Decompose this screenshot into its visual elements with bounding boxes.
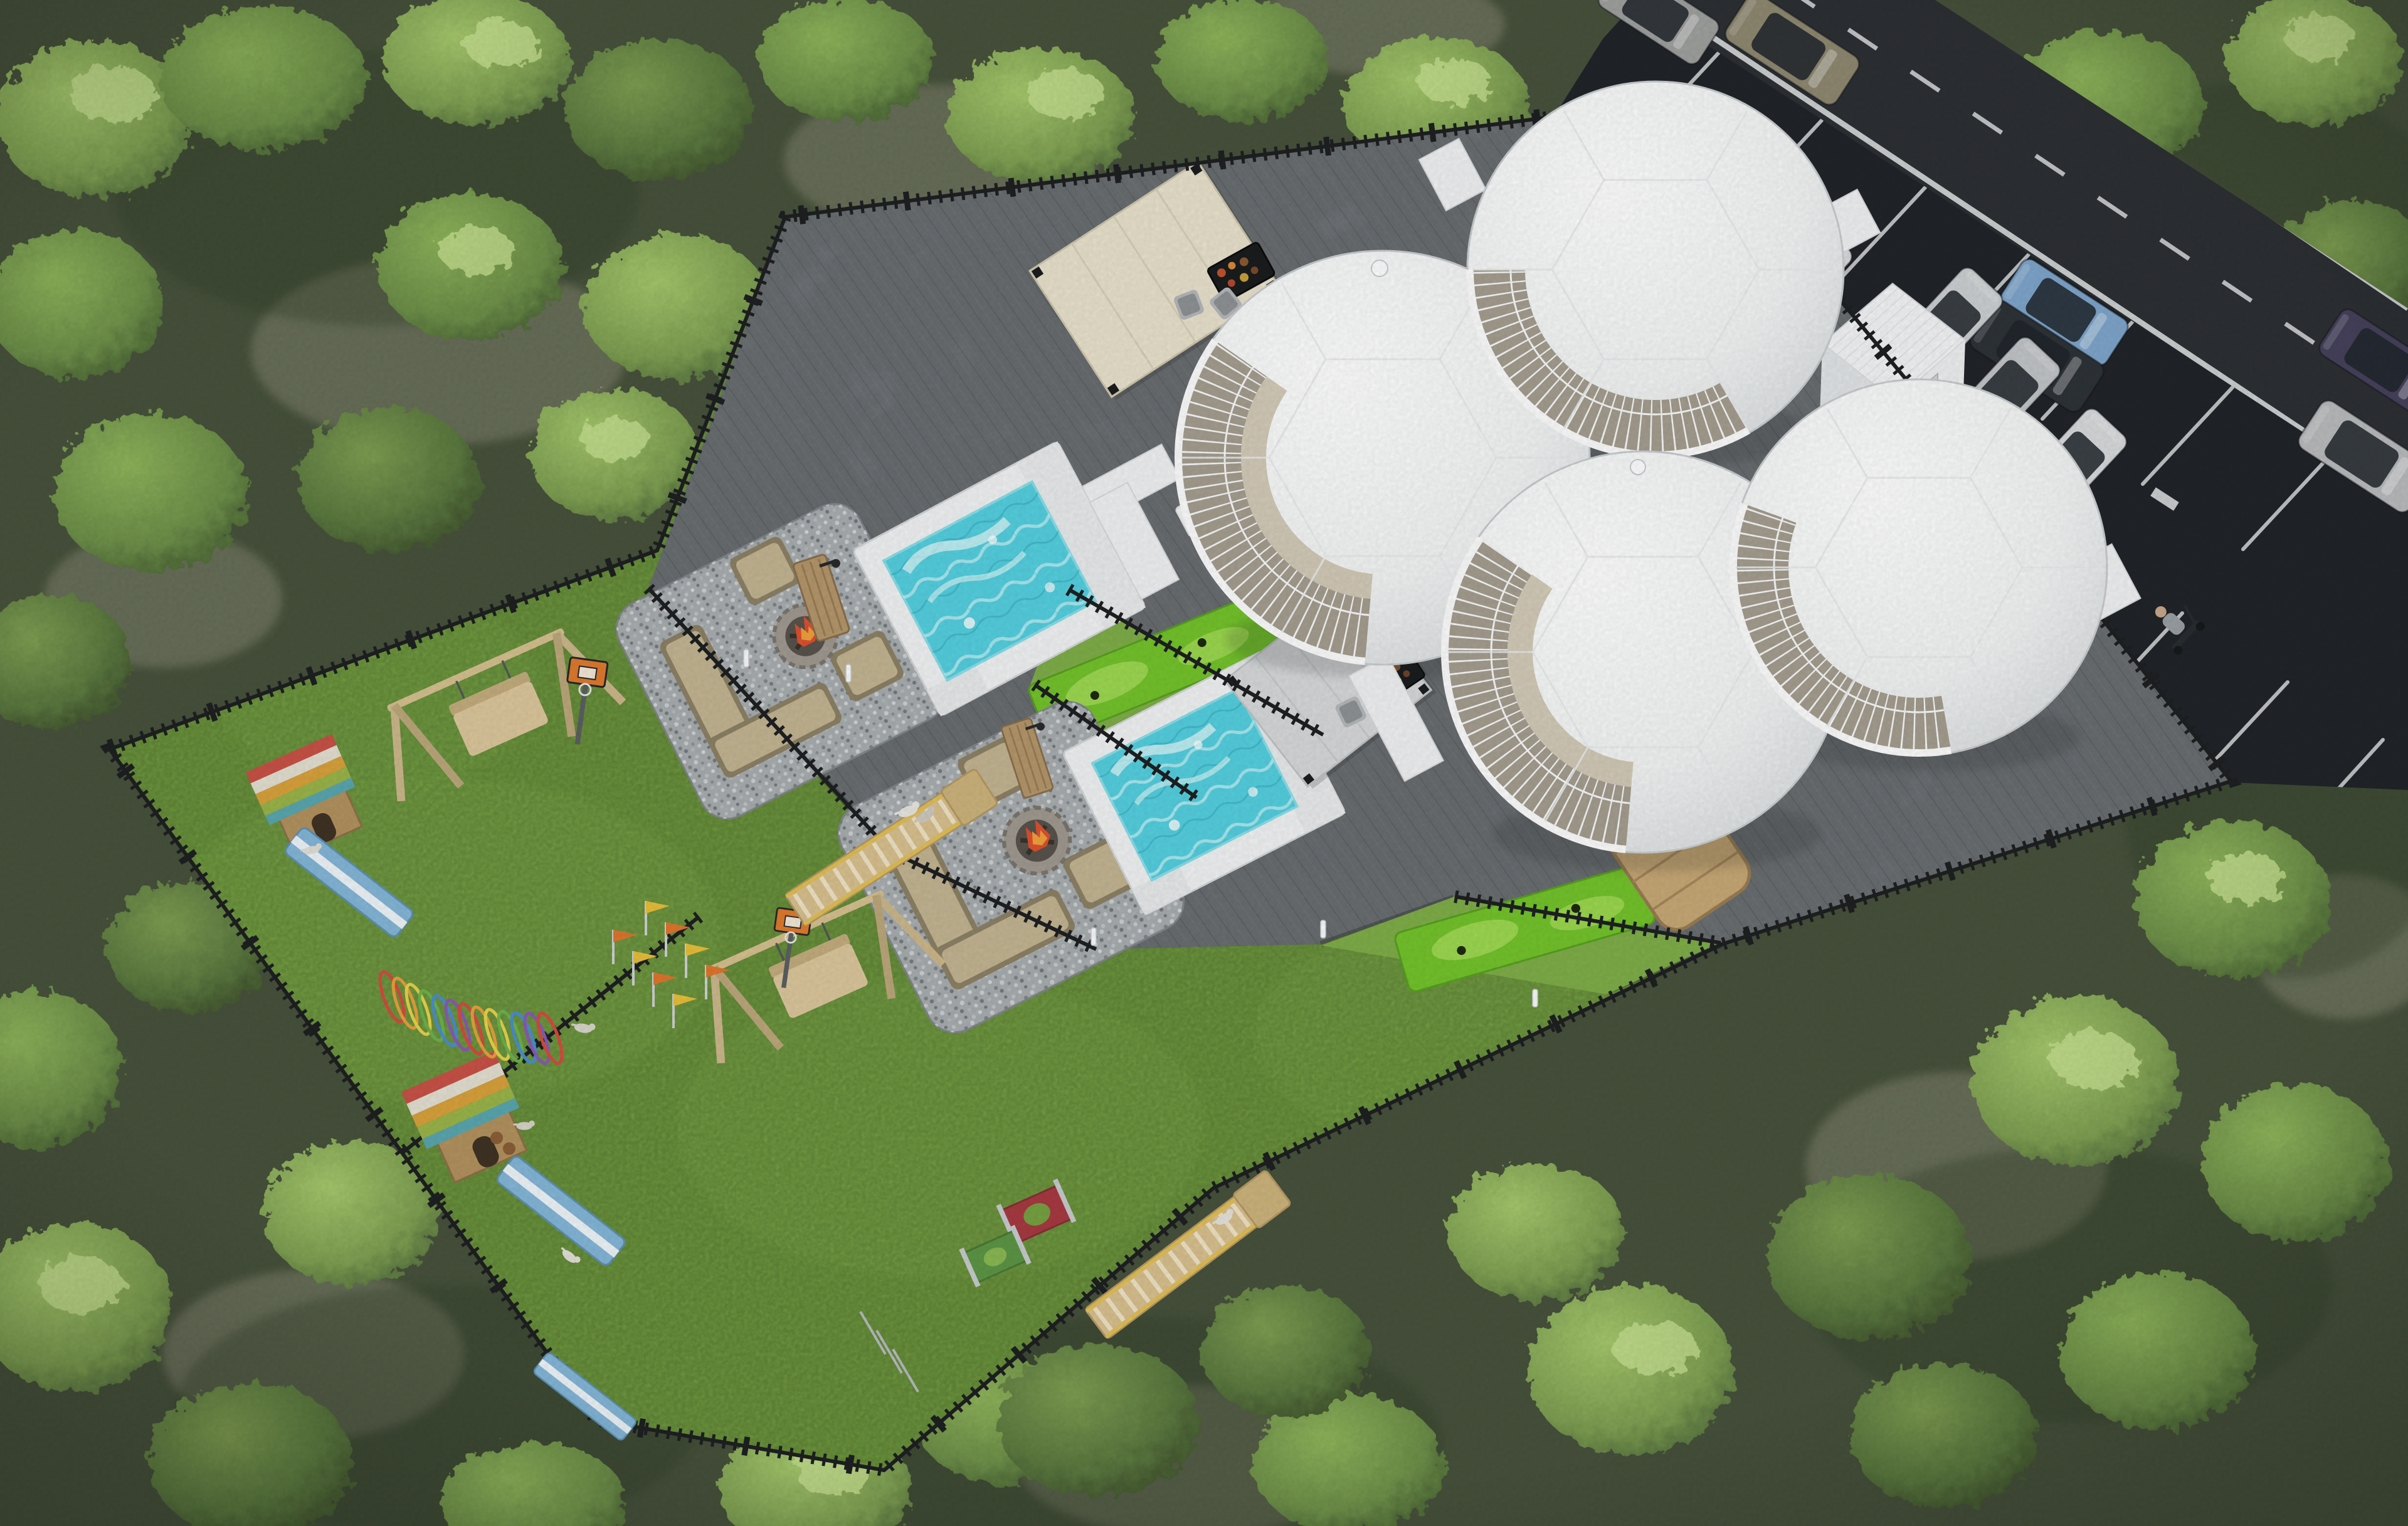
vignette [0,0,2408,1526]
aerial-render-glamping-resort [0,0,2408,1526]
